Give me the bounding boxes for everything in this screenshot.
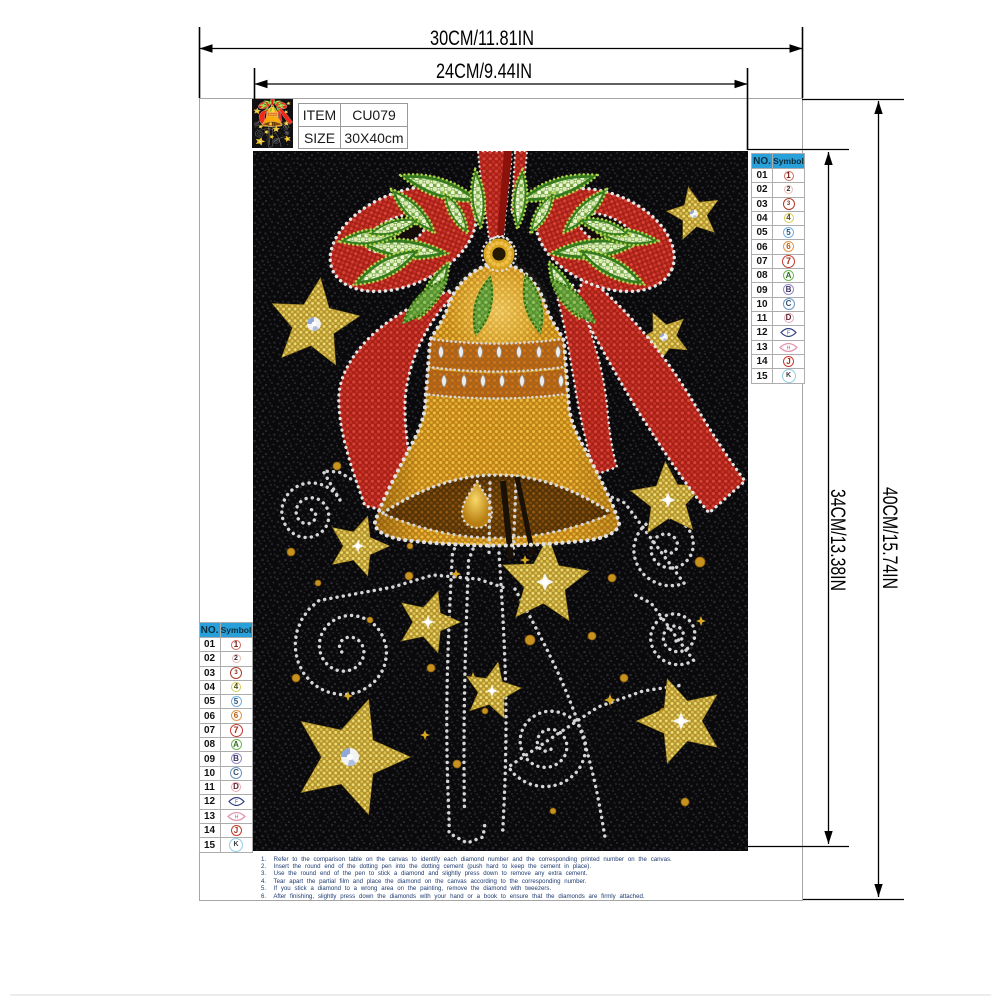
svg-text:F: F (787, 331, 790, 337)
svg-text:F: F (234, 800, 237, 806)
svg-text:40CM/15.74IN: 40CM/15.74IN (878, 487, 901, 589)
svg-text:30CM/11.81IN: 30CM/11.81IN (430, 27, 534, 50)
svg-text:H: H (787, 345, 791, 351)
svg-text:24CM/9.44IN: 24CM/9.44IN (436, 60, 532, 83)
svg-text:34CM/13.38IN: 34CM/13.38IN (826, 489, 849, 591)
svg-text:H: H (234, 814, 238, 820)
